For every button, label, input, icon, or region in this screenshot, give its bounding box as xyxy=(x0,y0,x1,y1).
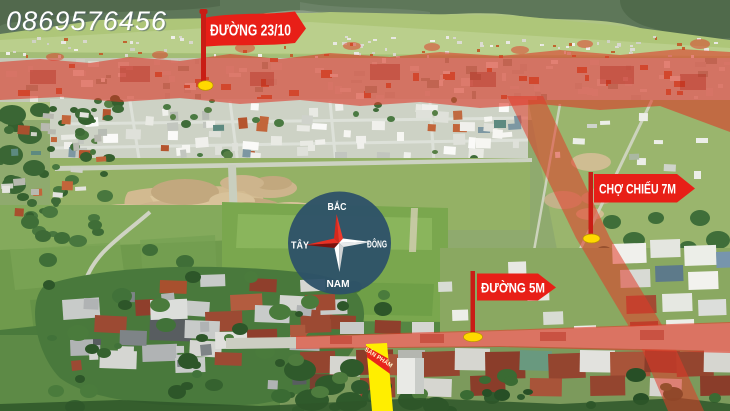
svg-text:ĐÔNG: ĐÔNG xyxy=(367,238,387,251)
svg-text:CHỢ CHIẾU 7M: CHỢ CHIẾU 7M xyxy=(599,182,676,197)
svg-text:BẮC: BẮC xyxy=(328,200,347,213)
svg-text:TÂY: TÂY xyxy=(291,239,309,252)
svg-text:0869576456: 0869576456 xyxy=(6,6,167,36)
svg-text:NAM: NAM xyxy=(327,278,350,290)
svg-text:ĐƯỜNG 5M: ĐƯỜNG 5M xyxy=(481,279,545,296)
svg-text:ĐƯỜNG 23/10: ĐƯỜNG 23/10 xyxy=(210,22,291,40)
